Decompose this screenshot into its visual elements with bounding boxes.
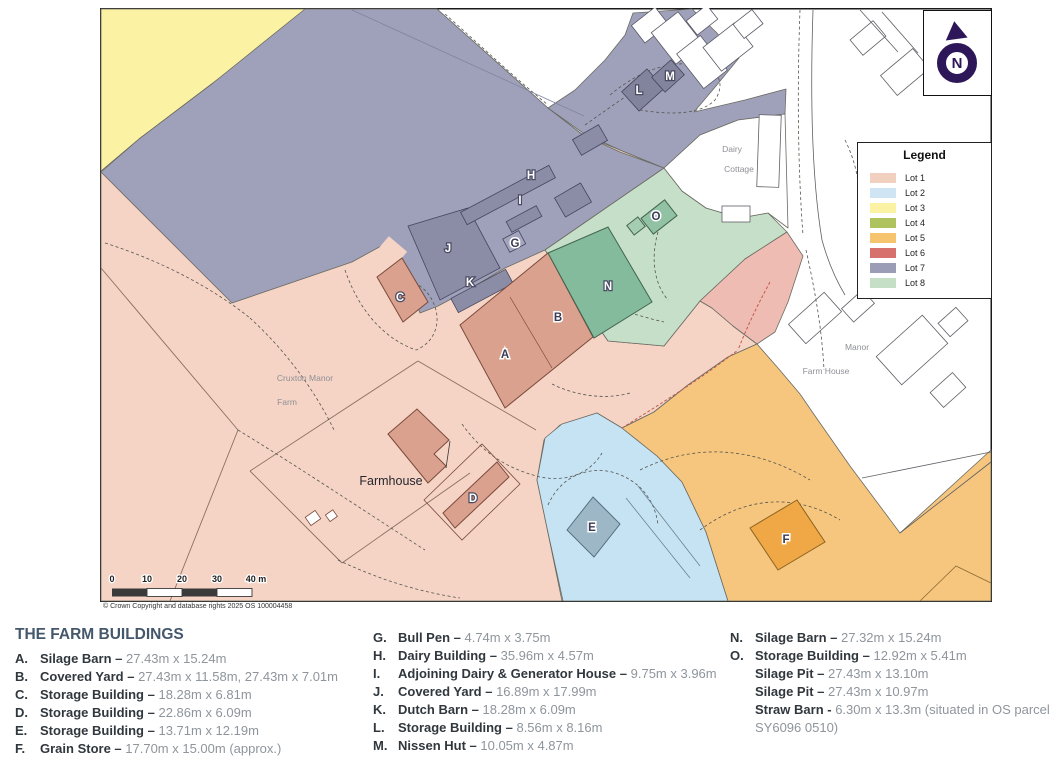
entry-dimensions: 27.43m x 13.10m [828,666,928,681]
entry-name: Straw Barn [755,702,824,717]
legend-label: Lot 2 [905,188,925,198]
entry-dimensions: 27.43m x 11.58m, 27.43m x 7.01m [138,669,338,684]
entry-key: O. [730,647,755,665]
legend-label: Lot 1 [905,173,925,183]
entry-name: Silage Barn [40,651,112,666]
building-marker-N: N [604,281,612,293]
building-entry: D.Storage Building – 22.86m x 6.09m [15,704,338,722]
legend-label: Lot 5 [905,233,925,243]
legend-item: Lot 1 [858,170,991,185]
building-entry: J.Covered Yard – 16.89m x 17.99m [373,683,717,701]
building-marker-K: K [466,277,475,289]
entry-name: Dairy Building [398,648,486,663]
legend-label: Lot 7 [905,263,925,273]
building-entry: E.Storage Building – 13.71m x 12.19m [15,722,338,740]
entry-name: Adjoining Dairy & Generator House [398,666,616,681]
entry-dimensions: 27.43m x 15.24m [126,651,226,666]
entry-name: Covered Yard [398,684,482,699]
entry-dimensions: 27.43m x 10.97m [828,684,928,699]
entry-name: Storage Building [40,705,144,720]
site-plan-map: 010203040 m Cruxton ManorFarmFarmhouseDa… [100,8,992,602]
entry-dimensions: 12.92m x 5.41m [873,648,966,663]
building-entry: C.Storage Building – 18.28m x 6.81m [15,686,338,704]
building-entry: Silage Pit – 27.43m x 13.10m [730,665,1050,683]
scalebar-tick: 20 [177,574,187,584]
place-label: Farmhouse [359,474,422,488]
entry-name: Silage Pit [755,684,814,699]
building-entry: H.Dairy Building – 35.96m x 4.57m [373,647,717,665]
entry-key: M. [373,737,398,755]
north-arrow: N [924,11,990,94]
entry-dimensions: 16.89m x 17.99m [496,684,596,699]
entry-name: Silage Barn [755,630,827,645]
entry-separator: – [124,669,138,684]
entry-key: K. [373,701,398,719]
entry-dimensions: 35.96m x 4.57m [501,648,594,663]
legend-swatch [870,248,896,258]
entry-name: Covered Yard [40,669,124,684]
farm-buildings-title: THE FARM BUILDINGS [15,626,184,644]
entry-dimensions: 22.86m x 6.09m [158,705,251,720]
building-marker-F: F [782,534,789,546]
place-label: Farm [277,397,297,407]
entry-dimensions: 18.28m x 6.09m [483,702,576,717]
entry-key: N. [730,629,755,647]
entry-separator: – [482,684,496,699]
entry-separator: – [502,720,516,735]
entry-dimensions: 4.74m x 3.75m [464,630,550,645]
entry-key: E. [15,722,40,740]
entry-key: A. [15,650,40,668]
building-marker-G: G [511,238,520,250]
legend-item: Lot 7 [858,260,991,275]
copyright-notice: © Crown Copyright and database rights 20… [103,603,292,610]
north-arrow-box: N [923,10,992,96]
legend-swatch [870,218,896,228]
entry-separator: – [111,741,125,756]
legend-label: Lot 4 [905,218,925,228]
building-entry: B.Covered Yard – 27.43m x 11.58m, 27.43m… [15,668,338,686]
building-entry: L.Storage Building – 8.56m x 8.16m [373,719,717,737]
entry-key: F. [15,740,40,758]
legend-swatch [870,188,896,198]
entry-separator: – [144,687,158,702]
entry-separator: – [827,630,841,645]
entry-name: Storage Building [398,720,502,735]
entry-separator: – [814,666,828,681]
building-entry: Silage Pit – 27.43m x 10.97m [730,683,1050,701]
entry-key: J. [373,683,398,701]
entry-key: G. [373,629,398,647]
legend-swatch [870,278,896,288]
legend-item: Lot 4 [858,215,991,230]
legend-title: Legend [858,148,991,162]
legend-swatch [870,203,896,213]
entry-dimensions: 6.30m x 13.3m (situated in OS parcel [835,702,1050,717]
entry-name: Grain Store [40,741,111,756]
building-entry: Straw Barn - 6.30m x 13.3m (situated in … [730,701,1050,719]
building-entry: I.Adjoining Dairy & Generator House – 9.… [373,665,717,683]
place-label: Cottage [724,164,754,174]
legend-swatch [870,173,896,183]
site-plan-page: 010203040 m Cruxton ManorFarmFarmhouseDa… [0,0,1053,763]
entry-name: Silage Pit [755,666,814,681]
entry-separator: – [486,648,500,663]
buildings-column-2: G.Bull Pen – 4.74m x 3.75mH.Dairy Buildi… [373,629,717,755]
entry-key: C. [15,686,40,704]
entry-dimensions: 27.32m x 15.24m [841,630,941,645]
entry-key: H. [373,647,398,665]
building-marker-D: D [469,493,477,505]
entry-dimensions: 13.71m x 12.19m [158,723,258,738]
entry-separator: – [144,723,158,738]
building-marker-J: J [445,243,451,255]
entry-dimensions: 18.28m x 6.81m [158,687,251,702]
entry-dimensions: 10.05m x 4.87m [480,738,573,753]
legend-swatch [870,233,896,243]
entry-separator: – [616,666,630,681]
entry-separator: – [468,702,482,717]
north-arrow-tip [943,20,967,41]
legend-label: Lot 3 [905,203,925,213]
entry-dimensions: 17.70m x 15.00m (approx.) [125,741,281,756]
entry-separator: – [814,684,828,699]
legend-item: Lot 8 [858,275,991,290]
legend-item: Lot 3 [858,200,991,215]
entry-dimensions: SY6096 0510) [755,720,838,735]
scalebar-tick: 10 [142,574,152,584]
building-entry: SY6096 0510) [730,719,1050,737]
entry-key: L. [373,719,398,737]
scalebar-tick: 40 m [246,574,267,584]
scalebar-tick: 0 [109,574,114,584]
building-marker-C: C [396,292,404,304]
building-entry: F.Grain Store – 17.70m x 15.00m (approx.… [15,740,338,758]
entry-name: Nissen Hut [398,738,466,753]
building-marker-O: O [652,211,661,223]
building-marker-M: M [665,71,675,83]
legend-swatch [870,263,896,273]
legend-item: Lot 2 [858,185,991,200]
building-entry: M.Nissen Hut – 10.05m x 4.87m [373,737,717,755]
entry-dimensions: 9.75m x 3.96m [631,666,717,681]
building-marker-H: H [527,170,535,182]
legend-label: Lot 6 [905,248,925,258]
entry-name: Dutch Barn [398,702,468,717]
place-label: Dairy [722,144,743,154]
entry-dimensions: 8.56m x 8.16m [516,720,602,735]
entry-separator: – [466,738,480,753]
entry-key: I. [373,665,398,683]
building-entry: N.Silage Barn – 27.32m x 15.24m [730,629,1050,647]
entry-key: D. [15,704,40,722]
entry-name: Bull Pen [398,630,450,645]
building-entry: G.Bull Pen – 4.74m x 3.75m [373,629,717,647]
place-label: Farm House [803,366,850,376]
building-entry: O.Storage Building – 12.92m x 5.41m [730,647,1050,665]
entry-separator: – [144,705,158,720]
entry-separator: – [450,630,464,645]
building-marker-L: L [635,85,642,97]
entry-name: Storage Building [755,648,859,663]
entry-separator: – [859,648,873,663]
building-entry: A.Silage Barn – 27.43m x 15.24m [15,650,338,668]
building-marker-A: A [501,349,509,361]
building-marker-E: E [588,522,596,534]
entry-separator: – [112,651,126,666]
entry-separator: - [824,702,836,717]
building-marker-B: B [554,312,562,324]
legend-item: Lot 6 [858,245,991,260]
entry-key: B. [15,668,40,686]
legend-item: Lot 5 [858,230,991,245]
entry-name: Storage Building [40,687,144,702]
place-label: Manor [845,342,869,352]
buildings-column-1: A.Silage Barn – 27.43m x 15.24mB.Covered… [15,650,338,758]
place-label: Cruxton Manor [277,373,333,383]
legend: Legend Lot 1Lot 2Lot 3Lot 4Lot 5Lot 6Lot… [857,142,992,299]
buildings-column-3: N.Silage Barn – 27.32m x 15.24mO.Storage… [730,629,1050,737]
building-marker-I: I [518,195,521,207]
scalebar-tick: 30 [212,574,222,584]
legend-label: Lot 8 [905,278,925,288]
north-letter: N [952,55,963,72]
building-entry: K.Dutch Barn – 18.28m x 6.09m [373,701,717,719]
entry-name: Storage Building [40,723,144,738]
